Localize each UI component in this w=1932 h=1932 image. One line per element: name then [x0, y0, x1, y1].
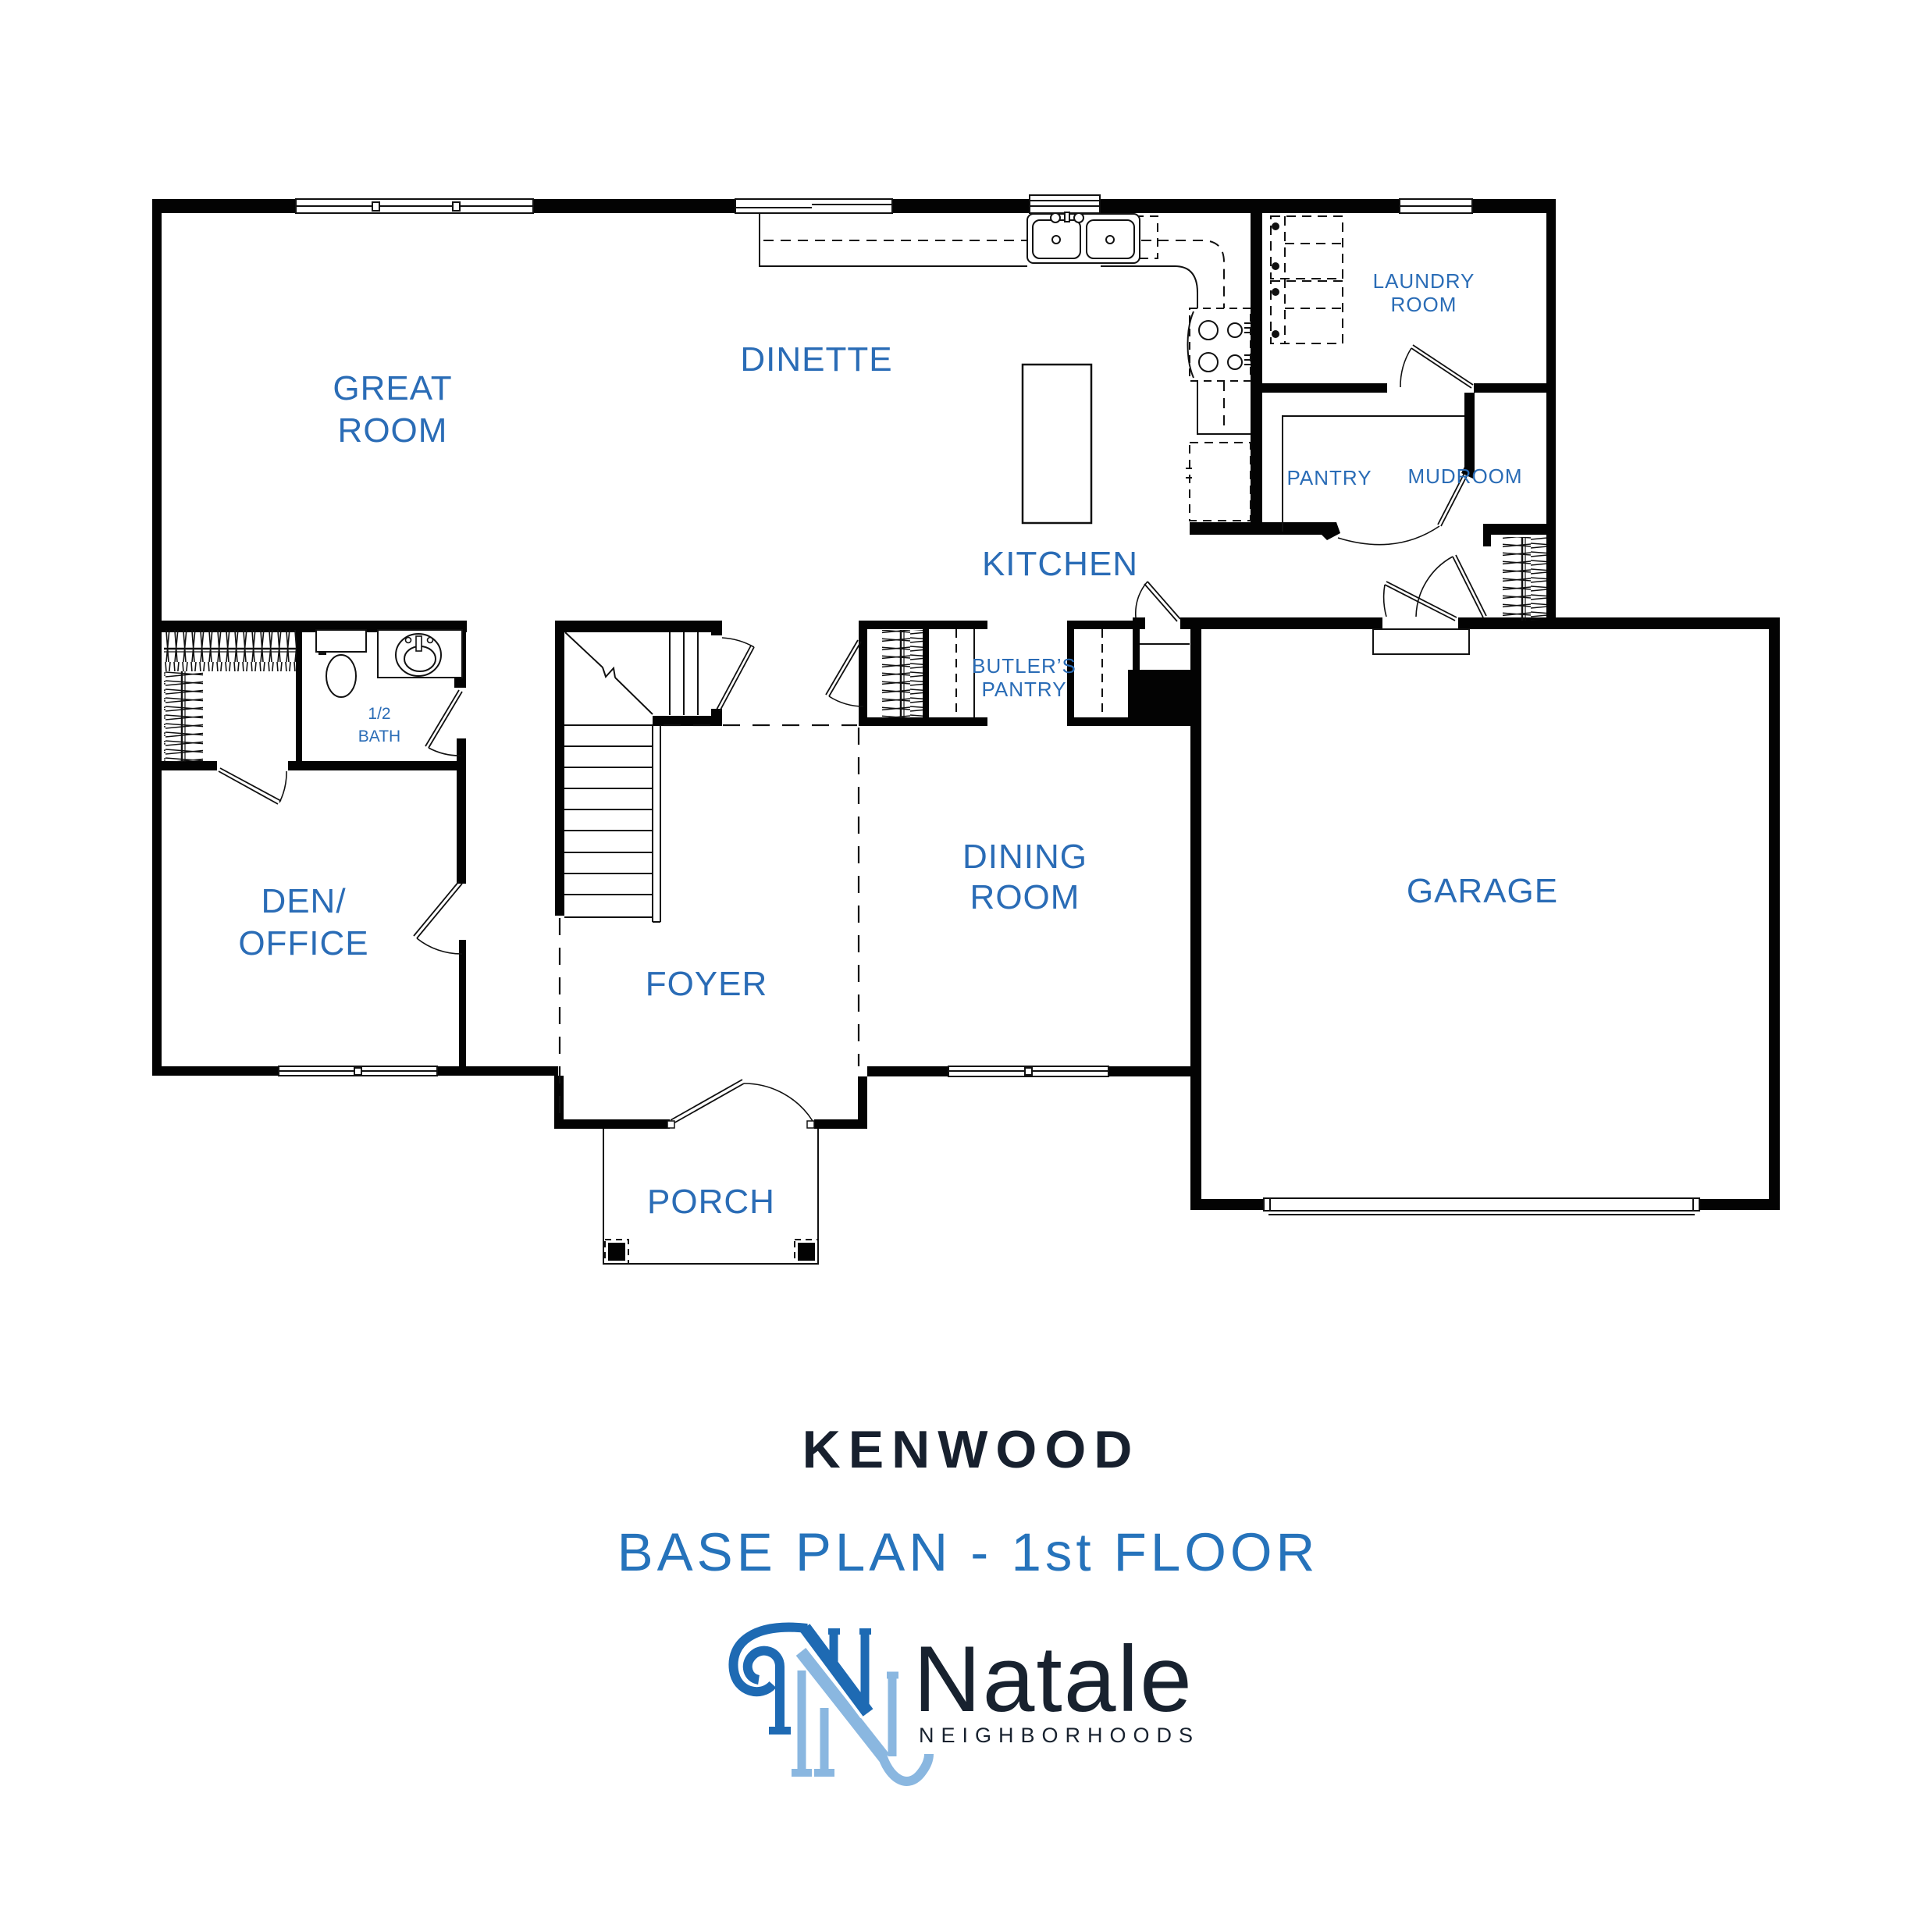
svg-text:BUTLER’S: BUTLER’S [972, 654, 1076, 678]
svg-text:GREAT: GREAT [333, 369, 452, 407]
svg-text:KITCHEN: KITCHEN [982, 545, 1138, 583]
svg-text:ROOM: ROOM [1391, 293, 1457, 316]
svg-text:OFFICE: OFFICE [238, 924, 368, 962]
svg-text:PANTRY: PANTRY [981, 678, 1066, 701]
svg-text:1/2: 1/2 [368, 705, 390, 723]
svg-text:PORCH: PORCH [647, 1183, 775, 1221]
svg-text:ROOM: ROOM [338, 411, 448, 450]
svg-text:BATH: BATH [358, 728, 400, 745]
svg-text:BASE PLAN - 1st FLOOR: BASE PLAN - 1st FLOOR [617, 1522, 1319, 1582]
svg-text:FOYER: FOYER [646, 965, 768, 1003]
svg-text:DINING: DINING [962, 838, 1087, 876]
svg-text:MUDROOM: MUDROOM [1407, 464, 1522, 488]
svg-text:Natale: Natale [913, 1627, 1194, 1731]
svg-text:LAUNDRY: LAUNDRY [1373, 269, 1475, 293]
svg-text:NEIGHBORHOODS: NEIGHBORHOODS [919, 1724, 1200, 1747]
svg-text:GARAGE: GARAGE [1407, 872, 1558, 910]
svg-text:PANTRY: PANTRY [1286, 466, 1372, 489]
svg-text:KENWOOD: KENWOOD [802, 1420, 1140, 1479]
svg-text:DEN/: DEN/ [261, 882, 346, 920]
svg-text:ROOM: ROOM [970, 878, 1080, 916]
svg-text:DINETTE: DINETTE [740, 340, 892, 379]
